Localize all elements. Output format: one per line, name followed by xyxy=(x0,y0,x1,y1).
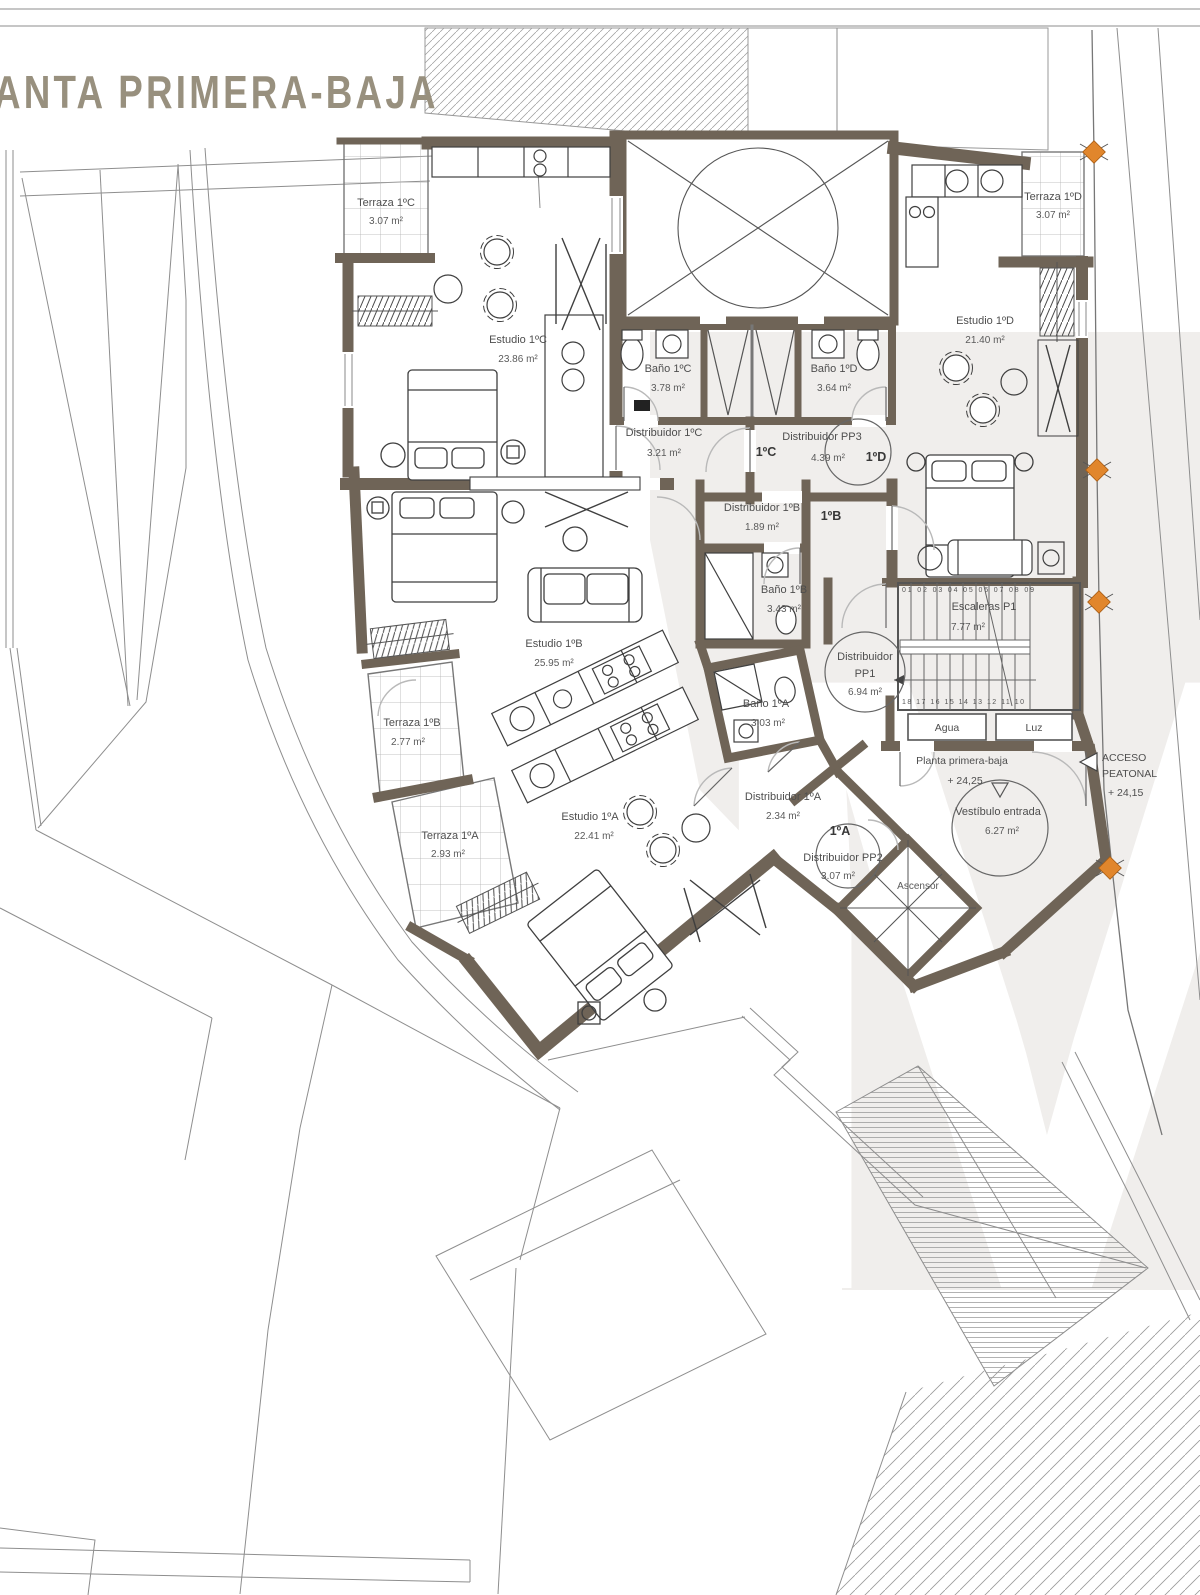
unit-tag-1d: 1ºD xyxy=(866,450,887,464)
label-ascensor: Ascensor xyxy=(897,881,939,892)
label-estudio-1d: Estudio 1ºD xyxy=(956,315,1014,327)
unit-tag-1a: 1ºA xyxy=(830,824,851,838)
svg-text:4.39 m²: 4.39 m² xyxy=(811,453,846,464)
svg-text:3.21 m²: 3.21 m² xyxy=(647,448,682,459)
svg-text:3.07 m²: 3.07 m² xyxy=(369,216,404,227)
label-dist-1a: Distribuidor 1ºA xyxy=(745,791,822,803)
svg-text:22.41 m²: 22.41 m² xyxy=(574,831,614,842)
svg-text:6.94 m²: 6.94 m² xyxy=(848,687,883,698)
label-terraza-1c: Terraza 1ºC xyxy=(357,197,415,209)
sofa-1b xyxy=(528,527,642,622)
svg-text:3.07 m²: 3.07 m² xyxy=(1036,210,1071,221)
patio-lightwell xyxy=(622,135,894,321)
svg-text:2.34 m²: 2.34 m² xyxy=(766,811,801,822)
label-terraza-1b: Terraza 1ºB xyxy=(383,717,440,729)
bed-1c xyxy=(381,370,525,480)
label-dist-pp1: Distribuidor xyxy=(837,651,893,663)
label-bano-1d: Baño 1ºD xyxy=(811,363,858,375)
svg-text:3.03 m²: 3.03 m² xyxy=(751,718,786,729)
bed-1b xyxy=(367,492,524,602)
label-dist-pp3: Distribuidor PP3 xyxy=(782,431,861,443)
label-dist-1b: Distribuidor 1ºB xyxy=(724,502,800,514)
access-line2: PEATONAL xyxy=(1102,768,1157,780)
svg-text:3.78 m²: 3.78 m² xyxy=(651,383,686,394)
agua-box-label: Agua xyxy=(935,722,960,734)
level-elevation: + 24,25 xyxy=(947,775,982,787)
svg-text:PP1: PP1 xyxy=(855,668,876,680)
bed-1a xyxy=(526,868,673,1024)
svg-text:3.07 m²: 3.07 m² xyxy=(821,871,856,882)
svg-text:3.43 m²: 3.43 m² xyxy=(767,604,802,615)
svg-text:7.77 m²: 7.77 m² xyxy=(951,622,986,633)
luz-box-label: Luz xyxy=(1026,722,1043,734)
kitchen-1d xyxy=(906,165,1022,267)
level-label: Planta primera-baja xyxy=(916,755,1008,767)
svg-text:25.95 m²: 25.95 m² xyxy=(534,658,574,669)
label-dist-1c: Distribuidor 1ºC xyxy=(626,427,703,439)
floor-plan-page: M xyxy=(0,0,1200,1595)
label-estudio-1b: Estudio 1ºB xyxy=(525,638,582,650)
access-line1: ACCESO xyxy=(1102,752,1146,764)
svg-text:3.64 m²: 3.64 m² xyxy=(817,383,852,394)
label-bano-1a: Baño 1ºA xyxy=(743,698,790,710)
unit-tag-1b: 1ºB xyxy=(821,509,842,523)
page-title: ANTA PRIMERA-BAJA xyxy=(0,66,439,118)
svg-text:6.27 m²: 6.27 m² xyxy=(985,826,1020,837)
label-estudio-1a: Estudio 1ºA xyxy=(561,811,619,823)
label-terraza-1d: Terraza 1ºD xyxy=(1024,191,1082,203)
floor-plan-svg: M xyxy=(0,0,1200,1595)
svg-text:2.77 m²: 2.77 m² xyxy=(391,737,426,748)
chairs-1c xyxy=(434,236,517,322)
svg-text:1.89 m²: 1.89 m² xyxy=(745,522,780,533)
unit-tag-1c: 1ºC xyxy=(756,445,777,459)
label-bano-1b: Baño 1ºB xyxy=(761,584,807,596)
label-terraza-1a: Terraza 1ºA xyxy=(421,830,479,842)
marker-icon xyxy=(1083,141,1106,164)
label-dist-pp2: Distribuidor PP2 xyxy=(803,852,882,864)
label-bano-1c: Baño 1ºC xyxy=(645,363,692,375)
svg-text:23.86 m²: 23.86 m² xyxy=(498,354,538,365)
label-escaleras: Escaleras P1 xyxy=(952,601,1017,613)
watermark-letter: M xyxy=(680,492,1200,1475)
access-elevation: + 24,15 xyxy=(1108,787,1143,799)
label-estudio-1c: Estudio 1ºC xyxy=(489,334,547,346)
label-vestibulo: Vestíbulo entrada xyxy=(955,806,1042,818)
svg-text:2.93 m²: 2.93 m² xyxy=(431,849,466,860)
svg-text:21.40 m²: 21.40 m² xyxy=(965,335,1005,346)
